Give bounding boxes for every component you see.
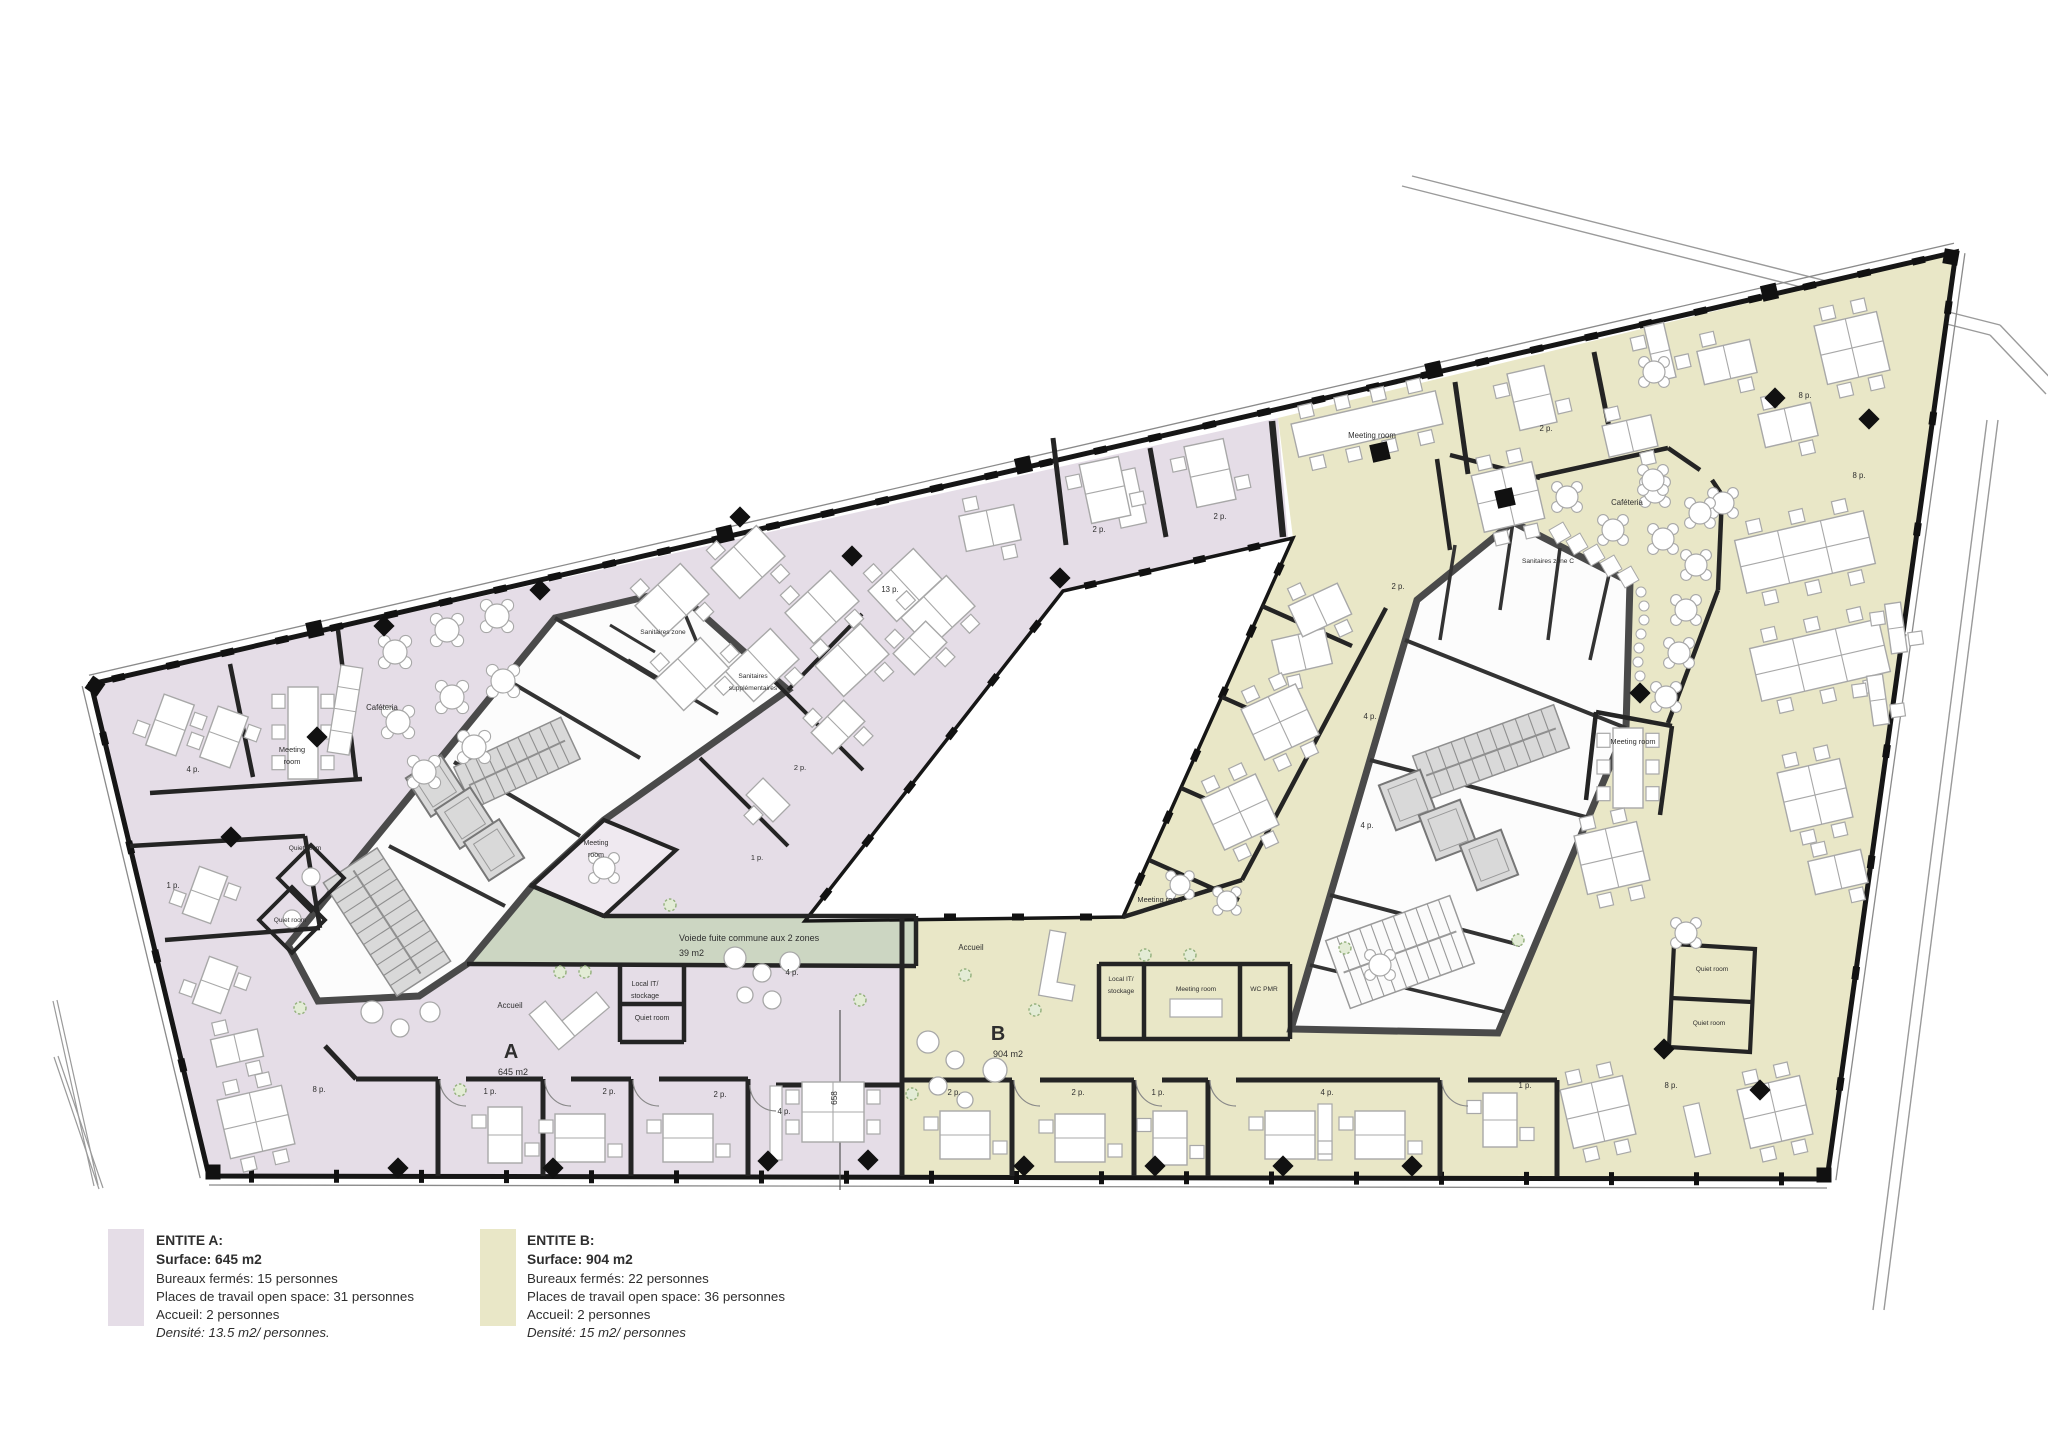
svg-text:1 p.: 1 p. xyxy=(751,853,763,862)
svg-text:Quiet room: Quiet room xyxy=(274,917,307,924)
svg-text:ENTITE B:: ENTITE B: xyxy=(527,1233,594,1248)
svg-text:1 p.: 1 p. xyxy=(1151,1088,1164,1097)
svg-text:2 p.: 2 p. xyxy=(1391,582,1404,591)
svg-text:Meeting: Meeting xyxy=(279,745,305,754)
svg-text:2 p.: 2 p. xyxy=(1092,525,1105,534)
svg-text:8 p.: 8 p. xyxy=(1852,471,1865,480)
svg-text:Voiede fuite commune aux 2 zon: Voiede fuite commune aux 2 zones xyxy=(679,933,820,943)
svg-text:Quiet room: Quiet room xyxy=(635,1015,670,1022)
svg-text:stockage: stockage xyxy=(1108,988,1135,995)
svg-text:Densité: 15 m2/ personnes: Densité: 15 m2/ personnes xyxy=(527,1325,686,1340)
svg-text:Sanitaires zone: Sanitaires zone xyxy=(640,629,686,636)
svg-text:1 p.: 1 p. xyxy=(166,881,179,890)
svg-text:2 p.: 2 p. xyxy=(713,1090,726,1099)
svg-text:Quiet room: Quiet room xyxy=(1693,1020,1726,1027)
svg-text:Surface: 645 m2: Surface: 645 m2 xyxy=(156,1252,262,1267)
svg-text:2 p.: 2 p. xyxy=(947,1088,960,1097)
svg-text:4 p.: 4 p. xyxy=(1363,712,1376,721)
svg-text:Caféteria: Caféteria xyxy=(366,703,398,712)
svg-text:2 p.: 2 p. xyxy=(1539,424,1552,433)
svg-text:13 p.: 13 p. xyxy=(881,585,898,594)
svg-text:2 p.: 2 p. xyxy=(1213,512,1226,521)
svg-text:4 p.: 4 p. xyxy=(1320,1088,1333,1097)
svg-text:4 p.: 4 p. xyxy=(785,968,798,977)
svg-text:room: room xyxy=(588,852,604,859)
svg-text:8 p.: 8 p. xyxy=(1798,391,1811,400)
svg-text:Meeting room: Meeting room xyxy=(1176,986,1217,993)
svg-text:Accueil: 2 personnes: Accueil: 2 personnes xyxy=(156,1307,280,1322)
svg-text:Surface: 904 m2: Surface: 904 m2 xyxy=(527,1252,633,1267)
svg-text:Accueil: Accueil xyxy=(497,1001,522,1010)
svg-text:Bureaux fermés: 22 personnes: Bureaux fermés: 22 personnes xyxy=(527,1271,709,1286)
svg-text:Sanitaires: Sanitaires xyxy=(738,673,768,680)
svg-text:Local IT/: Local IT/ xyxy=(1108,976,1133,983)
svg-text:8 p.: 8 p. xyxy=(1664,1081,1677,1090)
svg-text:Accueil: Accueil xyxy=(958,943,983,952)
svg-text:B: B xyxy=(991,1023,1005,1045)
svg-text:658: 658 xyxy=(830,1091,839,1105)
svg-text:supplémentaires: supplémentaires xyxy=(729,685,778,692)
svg-text:8 p.: 8 p. xyxy=(312,1085,325,1094)
svg-text:Quiet room: Quiet room xyxy=(289,845,322,852)
svg-text:Local IT/: Local IT/ xyxy=(632,981,659,988)
svg-text:Places de travail open space:: Places de travail open space: 31 personn… xyxy=(156,1289,414,1304)
svg-text:Accueil: 2 personnes: Accueil: 2 personnes xyxy=(527,1307,651,1322)
svg-text:Bureaux fermés: 15 personnes: Bureaux fermés: 15 personnes xyxy=(156,1271,338,1286)
svg-text:645 m2: 645 m2 xyxy=(498,1067,528,1077)
svg-text:Quiet room: Quiet room xyxy=(1696,966,1729,973)
svg-text:WC PMR: WC PMR xyxy=(1250,986,1278,993)
svg-text:2 p.: 2 p. xyxy=(602,1087,615,1096)
svg-text:Meeting: Meeting xyxy=(584,840,609,847)
svg-text:Sanitaires zone C: Sanitaires zone C xyxy=(1522,558,1574,565)
svg-text:Meeting room: Meeting room xyxy=(1610,737,1655,746)
svg-text:1 p.: 1 p. xyxy=(1518,1081,1531,1090)
svg-text:904 m2: 904 m2 xyxy=(993,1049,1023,1059)
svg-text:4 p.: 4 p. xyxy=(1360,821,1373,830)
svg-text:A: A xyxy=(504,1041,518,1063)
svg-text:1 p.: 1 p. xyxy=(483,1087,496,1096)
svg-text:stockage: stockage xyxy=(631,993,659,1000)
svg-text:Densité: 13.5 m2/ personnes.: Densité: 13.5 m2/ personnes. xyxy=(156,1325,330,1340)
svg-text:Caféteria: Caféteria xyxy=(1611,498,1643,507)
svg-text:room: room xyxy=(284,757,301,766)
svg-text:Places de travail open space:: Places de travail open space: 36 personn… xyxy=(527,1289,785,1304)
svg-text:4 p.: 4 p. xyxy=(186,765,199,774)
svg-text:Meeting room: Meeting room xyxy=(1137,895,1182,904)
svg-text:ENTITE A:: ENTITE A: xyxy=(156,1233,223,1248)
svg-text:Meeting room: Meeting room xyxy=(1348,431,1396,440)
svg-text:4 p.: 4 p. xyxy=(777,1107,790,1116)
svg-text:2 p.: 2 p. xyxy=(794,763,806,772)
svg-text:2 p.: 2 p. xyxy=(1071,1088,1084,1097)
svg-text:39 m2: 39 m2 xyxy=(679,948,704,958)
